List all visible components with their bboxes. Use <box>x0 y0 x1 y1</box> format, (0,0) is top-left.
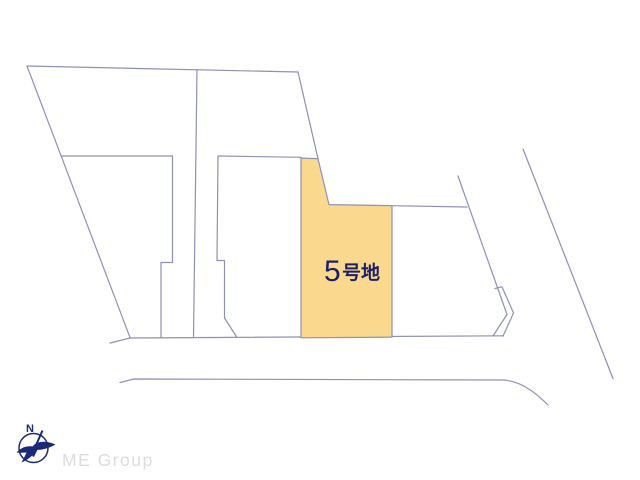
block-left-slant-edge <box>27 66 130 338</box>
lot5-label-number: 5 <box>324 255 341 288</box>
left-lot-right-edge <box>161 156 173 338</box>
block-top-edge <box>27 66 298 72</box>
road-center-line <box>194 70 198 338</box>
company-logo: N ME Group <box>17 423 154 470</box>
right-lot-top-edge <box>392 206 467 207</box>
lot5-label-suffix: 号地 <box>342 261 380 284</box>
site-plan-page: 5 号地 N ME Group <box>0 0 640 480</box>
middle-lot-top-edge <box>218 156 301 157</box>
company-name: ME Group <box>62 450 154 470</box>
highlight-lot-upper-diagonal <box>298 72 318 159</box>
front-road-edge <box>120 379 548 405</box>
parcel-boundaries <box>27 66 613 405</box>
middle-lot-left-edge <box>217 156 237 338</box>
compass-north-letter: N <box>26 423 34 435</box>
street-diagonal-left <box>458 176 507 336</box>
site-plan-drawing: 5 号地 N ME Group <box>0 0 640 480</box>
lot5-polygon <box>301 158 392 338</box>
street-diagonal-right <box>523 149 613 379</box>
